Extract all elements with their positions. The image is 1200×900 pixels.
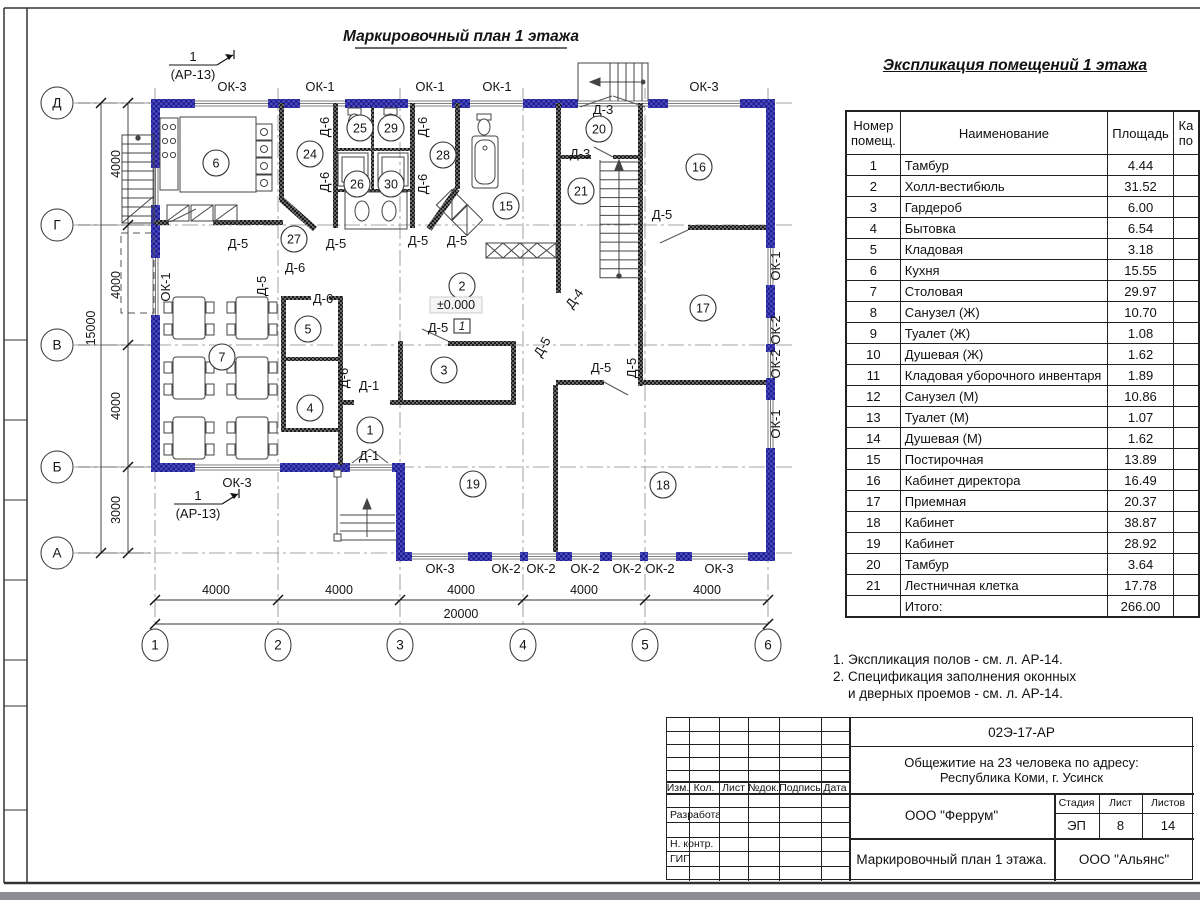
tb-project-name: Общежитие на 23 человека по адресу: Респ… (849, 746, 1194, 793)
room-number: 1 (367, 424, 374, 438)
schedule-cell: Столовая (900, 281, 1107, 302)
tb-col-data: Дата (821, 781, 849, 794)
tb-col-izm: Изм. (667, 781, 689, 794)
window-label: ОК-1 (768, 251, 783, 280)
dimension-label: 4000 (325, 583, 353, 597)
schedule-cell: 10 (846, 344, 900, 365)
floor-type-mark: 1 (459, 321, 465, 333)
note-2b: и дверных проемов - см. л. АР-14. (833, 686, 1076, 703)
dimension-label: 4000 (109, 271, 123, 299)
section-marker-number: 1 (189, 49, 196, 64)
schedule-cell: Кабинет директора (900, 470, 1107, 491)
room-number: 26 (350, 178, 364, 192)
schedule-cell: 15 (846, 449, 900, 470)
schedule-cell: 3 (846, 197, 900, 218)
schedule-cell: 1.07 (1108, 407, 1174, 428)
tb-col-podpis: Подпись (779, 781, 821, 794)
schedule-row: 1Тамбур4.44 (846, 155, 1199, 176)
schedule-cell: 3.18 (1108, 239, 1174, 260)
dimension-label: 4000 (109, 392, 123, 420)
schedule-cell: Туалет (Ж) (900, 323, 1107, 344)
schedule-cell (1173, 260, 1199, 281)
room-number: 16 (692, 161, 706, 175)
schedule-cell: 3.64 (1108, 554, 1174, 575)
door-leaves (170, 96, 688, 463)
schedule-row: 21Лестничная клетка17.78 (846, 575, 1199, 596)
schedule-cell: 5 (846, 239, 900, 260)
door-label: Д-6 (415, 117, 430, 137)
dimension-total-label: 20000 (444, 607, 479, 621)
schedule-cell: 7 (846, 281, 900, 302)
col-header-area: Площадь (1108, 111, 1174, 155)
window-label: ОК-1 (768, 409, 783, 438)
schedule-cell (1173, 491, 1199, 512)
tb-role-ncontrol: Н. контр. (667, 837, 719, 851)
schedule-cell: 38.87 (1108, 512, 1174, 533)
door-label: Д-4 (562, 286, 586, 311)
schedule-cell: 31.52 (1108, 176, 1174, 197)
schedule-row: 7Столовая29.97 (846, 281, 1199, 302)
room-number: 28 (436, 149, 450, 163)
schedule-cell (1173, 155, 1199, 176)
total-label: Итого: (900, 596, 1107, 618)
room-number: 29 (384, 122, 398, 136)
dimension-total-label: 15000 (84, 311, 98, 346)
schedule-cell: Кабинет (900, 533, 1107, 554)
axis-bubble-col: 3 (396, 638, 404, 653)
door-label: Д-1 (359, 378, 379, 393)
room-number: 3 (441, 364, 448, 378)
schedule-cell: 1.62 (1108, 428, 1174, 449)
tb-org-designer: ООО "Феррум" (849, 793, 1054, 838)
schedule-cell: Кабинет (900, 512, 1107, 533)
col-header-name: Наименование (900, 111, 1107, 155)
tb-sheet-value: 8 (1099, 813, 1142, 838)
schedule-title: Экспликация помещений 1 этажа (850, 57, 1180, 75)
schedule-cell: 16.49 (1108, 470, 1174, 491)
door-label: Д-6 (317, 117, 332, 137)
section-marker-number: 1 (194, 488, 201, 503)
tb-col-list: Лист (719, 781, 748, 794)
window-label: ОК-2 (526, 561, 555, 576)
door-label: Д-5 (326, 236, 346, 251)
schedule-cell: Тамбур (900, 554, 1107, 575)
schedule-cell (1173, 533, 1199, 554)
schedule-cell (1173, 449, 1199, 470)
schedule-cell: Кладовая (900, 239, 1107, 260)
canopy-dashed (121, 233, 154, 313)
door-label: Д-5 (228, 236, 248, 251)
window-label: ОК-1 (482, 79, 511, 94)
schedule-cell (1173, 407, 1199, 428)
schedule-cell: 6.00 (1108, 197, 1174, 218)
door-label: Д-5 (447, 233, 467, 248)
room-number: 6 (213, 157, 220, 171)
dimension-label: 4000 (109, 150, 123, 178)
schedule-row: 5Кладовая3.18 (846, 239, 1199, 260)
schedule-cell: 1.08 (1108, 323, 1174, 344)
schedule-cell: Тамбур (900, 155, 1107, 176)
schedule-cell (1173, 512, 1199, 533)
schedule-cell: Душевая (М) (900, 428, 1107, 449)
schedule-cell (1173, 281, 1199, 302)
schedule-cell (1173, 323, 1199, 344)
window-label: ОК-1 (305, 79, 334, 94)
room-number: 30 (384, 178, 398, 192)
schedule-row: 19Кабинет28.92 (846, 533, 1199, 554)
axis-bubble-col: 4 (519, 638, 527, 653)
room-number: 24 (303, 148, 317, 162)
section-marker-ref: (АР-13) (171, 67, 216, 82)
door-label: Д-6 (336, 368, 351, 388)
schedule-cell: 12 (846, 386, 900, 407)
axis-bubble-row: Д (52, 96, 61, 111)
room-number: 25 (353, 122, 367, 136)
section-marker-ref: (АР-13) (176, 506, 221, 521)
tb-org-contractor: ООО "Альянс" (1054, 838, 1194, 881)
window-label: ОК-2 (768, 315, 783, 344)
schedule-row: 16Кабинет директора16.49 (846, 470, 1199, 491)
tb-role-developer: Разработал (667, 807, 719, 822)
window-label: ОК-2 (768, 349, 783, 378)
tb-col-ndok: №док. (748, 781, 779, 794)
schedule-cell (1173, 344, 1199, 365)
schedule-cell: 1.62 (1108, 344, 1174, 365)
dining-tables (164, 297, 277, 459)
window-label: ОК-3 (704, 561, 733, 576)
schedule-cell: Кладовая уборочного инвентаря (900, 365, 1107, 386)
room-number: 20 (592, 123, 606, 137)
schedule-cell (1173, 470, 1199, 491)
room-number: 4 (307, 402, 314, 416)
door-label: Д-5 (531, 334, 554, 359)
schedule-row: 15Постирочная13.89 (846, 449, 1199, 470)
tb-role-gip: ГИП (667, 851, 719, 866)
schedule-cell: Кухня (900, 260, 1107, 281)
schedule-row: 14Душевая (М)1.62 (846, 428, 1199, 449)
door-label: Д-5 (428, 320, 448, 335)
door-label: Д-1 (359, 448, 379, 463)
note-2: 2. Спецификация заполнения оконных (833, 669, 1076, 686)
schedule-cell: 28.92 (1108, 533, 1174, 554)
schedule-cell: 6 (846, 260, 900, 281)
schedule-row: 2Холл-вестибюль31.52 (846, 176, 1199, 197)
door-label: Д-6 (317, 172, 332, 192)
drawing-sheet: 4000400040003000150004000400040004000400… (0, 0, 1200, 900)
schedule-row: 13Туалет (М)1.07 (846, 407, 1199, 428)
door-label: Д-5 (591, 360, 611, 375)
schedule-row: 12Санузел (М)10.86 (846, 386, 1199, 407)
schedule-cell: 10.70 (1108, 302, 1174, 323)
schedule-cell: 20 (846, 554, 900, 575)
drawing-notes: 1. Экспликация полов - см. л. АР-14. 2. … (833, 652, 1076, 703)
schedule-cell: Бытовка (900, 218, 1107, 239)
tb-stage-value: ЭП (1054, 813, 1099, 838)
axis-bubble-col: 5 (641, 638, 649, 653)
schedule-cell: 15.55 (1108, 260, 1174, 281)
schedule-cell: 11 (846, 365, 900, 386)
dimension-label: 4000 (693, 583, 721, 597)
schedule-row: 20Тамбур3.64 (846, 554, 1199, 575)
window-label: ОК-2 (645, 561, 674, 576)
schedule-cell (1173, 302, 1199, 323)
axis-bubble-row: А (52, 546, 61, 561)
schedule-cell (1173, 197, 1199, 218)
tb-sheets-label: Листов (1142, 793, 1194, 813)
schedule-row: 18Кабинет38.87 (846, 512, 1199, 533)
schedule-cell: 9 (846, 323, 900, 344)
schedule-cell: 4.44 (1108, 155, 1174, 176)
axis-bubble-col: 2 (274, 638, 282, 653)
title-block: Изм. Кол. Лист №док. Подпись Дата Разраб… (666, 717, 1193, 880)
room-number: 15 (499, 200, 513, 214)
room-number: 7 (219, 351, 226, 365)
window-label: ОК-3 (222, 475, 251, 490)
tb-sheets-value: 14 (1142, 813, 1194, 838)
window-label: ОК-2 (570, 561, 599, 576)
total-value: 266.00 (1108, 596, 1174, 618)
schedule-cell: Холл-вестибюль (900, 176, 1107, 197)
door-label: Д-5 (624, 358, 639, 378)
schedule-cell: 14 (846, 428, 900, 449)
schedule-cell: 17 (846, 491, 900, 512)
schedule-cell: Санузел (Ж) (900, 302, 1107, 323)
dimension-label: 4000 (202, 583, 230, 597)
exterior-stair-left (122, 135, 154, 223)
schedule-cell: 13.89 (1108, 449, 1174, 470)
door-label: Д-5 (652, 207, 672, 222)
tb-sheet-label: Лист (1099, 793, 1142, 813)
door-label: Д-6 (313, 291, 333, 306)
stair-main (600, 160, 638, 278)
door-label: Д-3 (570, 146, 590, 161)
schedule-cell: 8 (846, 302, 900, 323)
schedule-cell: 2 (846, 176, 900, 197)
schedule-cell: 4 (846, 218, 900, 239)
schedule-cell: Гардероб (900, 197, 1107, 218)
dimension-label: 3000 (109, 496, 123, 524)
window-label: ОК-3 (689, 79, 718, 94)
window-label: ОК-3 (217, 79, 246, 94)
schedule-cell (1173, 176, 1199, 197)
door-label: Д-5 (408, 233, 428, 248)
tb-doc-number: 02Э-17-АР (849, 718, 1194, 746)
window-label: ОК-1 (158, 272, 173, 301)
schedule-cell: 6.54 (1108, 218, 1174, 239)
room-number: 21 (574, 185, 588, 199)
schedule-cell: Приемная (900, 491, 1107, 512)
schedule-row: 6Кухня15.55 (846, 260, 1199, 281)
schedule-cell: Туалет (М) (900, 407, 1107, 428)
schedule-row: 8Санузел (Ж)10.70 (846, 302, 1199, 323)
room-number: 19 (466, 478, 480, 492)
axis-bubble-row: Б (53, 460, 62, 475)
tb-stage-label: Стадия (1054, 793, 1099, 813)
schedule-row: 9Туалет (Ж)1.08 (846, 323, 1199, 344)
col-header-cut: Ка по (1173, 111, 1199, 155)
schedule-cell: 10.86 (1108, 386, 1174, 407)
schedule-cell: 29.97 (1108, 281, 1174, 302)
schedule-cell: Санузел (М) (900, 386, 1107, 407)
schedule-cell (1173, 554, 1199, 575)
schedule-cell (1173, 218, 1199, 239)
schedule-cell: Душевая (Ж) (900, 344, 1107, 365)
axis-bubble-col: 1 (151, 638, 159, 653)
dimension-label: 4000 (570, 583, 598, 597)
axis-bubble-col: 6 (764, 638, 772, 653)
schedule-cell: 18 (846, 512, 900, 533)
schedule-cell: 17.78 (1108, 575, 1174, 596)
schedule-cell: 13 (846, 407, 900, 428)
plan-title: Маркировочный план 1 этажа (343, 28, 579, 45)
tb-drawing-name: Маркировочный план 1 этажа. (849, 838, 1054, 881)
room-number: 18 (656, 479, 670, 493)
schedule-total-row: Итого: 266.00 (846, 596, 1199, 618)
schedule-cell (1173, 386, 1199, 407)
note-1: 1. Экспликация полов - см. л. АР-14. (833, 652, 1076, 669)
window-label: ОК-2 (491, 561, 520, 576)
schedule-row: 11Кладовая уборочного инвентаря1.89 (846, 365, 1199, 386)
room-schedule-table: Номер помещ. Наименование Площадь Ка по … (845, 110, 1200, 618)
porch-top (578, 63, 648, 101)
dimension-label: 4000 (447, 583, 475, 597)
schedule-cell (1173, 239, 1199, 260)
door-label: Д-6 (285, 260, 305, 275)
room-number: 2 (459, 280, 466, 294)
door-label: Д-5 (254, 276, 269, 296)
window-label: ОК-3 (425, 561, 454, 576)
door-label: Д-3 (593, 102, 613, 117)
schedule-cell (1173, 428, 1199, 449)
window-label: ОК-2 (612, 561, 641, 576)
schedule-cell: 21 (846, 575, 900, 596)
room-number: 27 (287, 233, 301, 247)
schedule-row: 3Гардероб6.00 (846, 197, 1199, 218)
schedule-cell: 1 (846, 155, 900, 176)
schedule-cell: 1.89 (1108, 365, 1174, 386)
screen-bottom-strip (0, 892, 1200, 900)
schedule-cell: 20.37 (1108, 491, 1174, 512)
schedule-row: 4Бытовка6.54 (846, 218, 1199, 239)
schedule-cell: 16 (846, 470, 900, 491)
tb-col-kol: Кол. (689, 781, 719, 794)
door-label: Д-6 (415, 174, 430, 194)
schedule-cell: Постирочная (900, 449, 1107, 470)
schedule-cell: Лестничная клетка (900, 575, 1107, 596)
room-number: 17 (696, 302, 710, 316)
elevation-mark: ±0.000 (437, 298, 475, 312)
schedule-cell: 19 (846, 533, 900, 554)
axis-bubble-row: Г (53, 218, 61, 233)
col-header-number: Номер помещ. (846, 111, 900, 155)
window-label: ОК-1 (415, 79, 444, 94)
axis-bubble-row: В (52, 338, 61, 353)
schedule-cell (1173, 365, 1199, 386)
room-number: 5 (305, 323, 312, 337)
porch-entrance-bottom (334, 470, 397, 541)
schedule-cell (1173, 575, 1199, 596)
schedule-row: 17Приемная20.37 (846, 491, 1199, 512)
schedule-row: 10Душевая (Ж)1.62 (846, 344, 1199, 365)
